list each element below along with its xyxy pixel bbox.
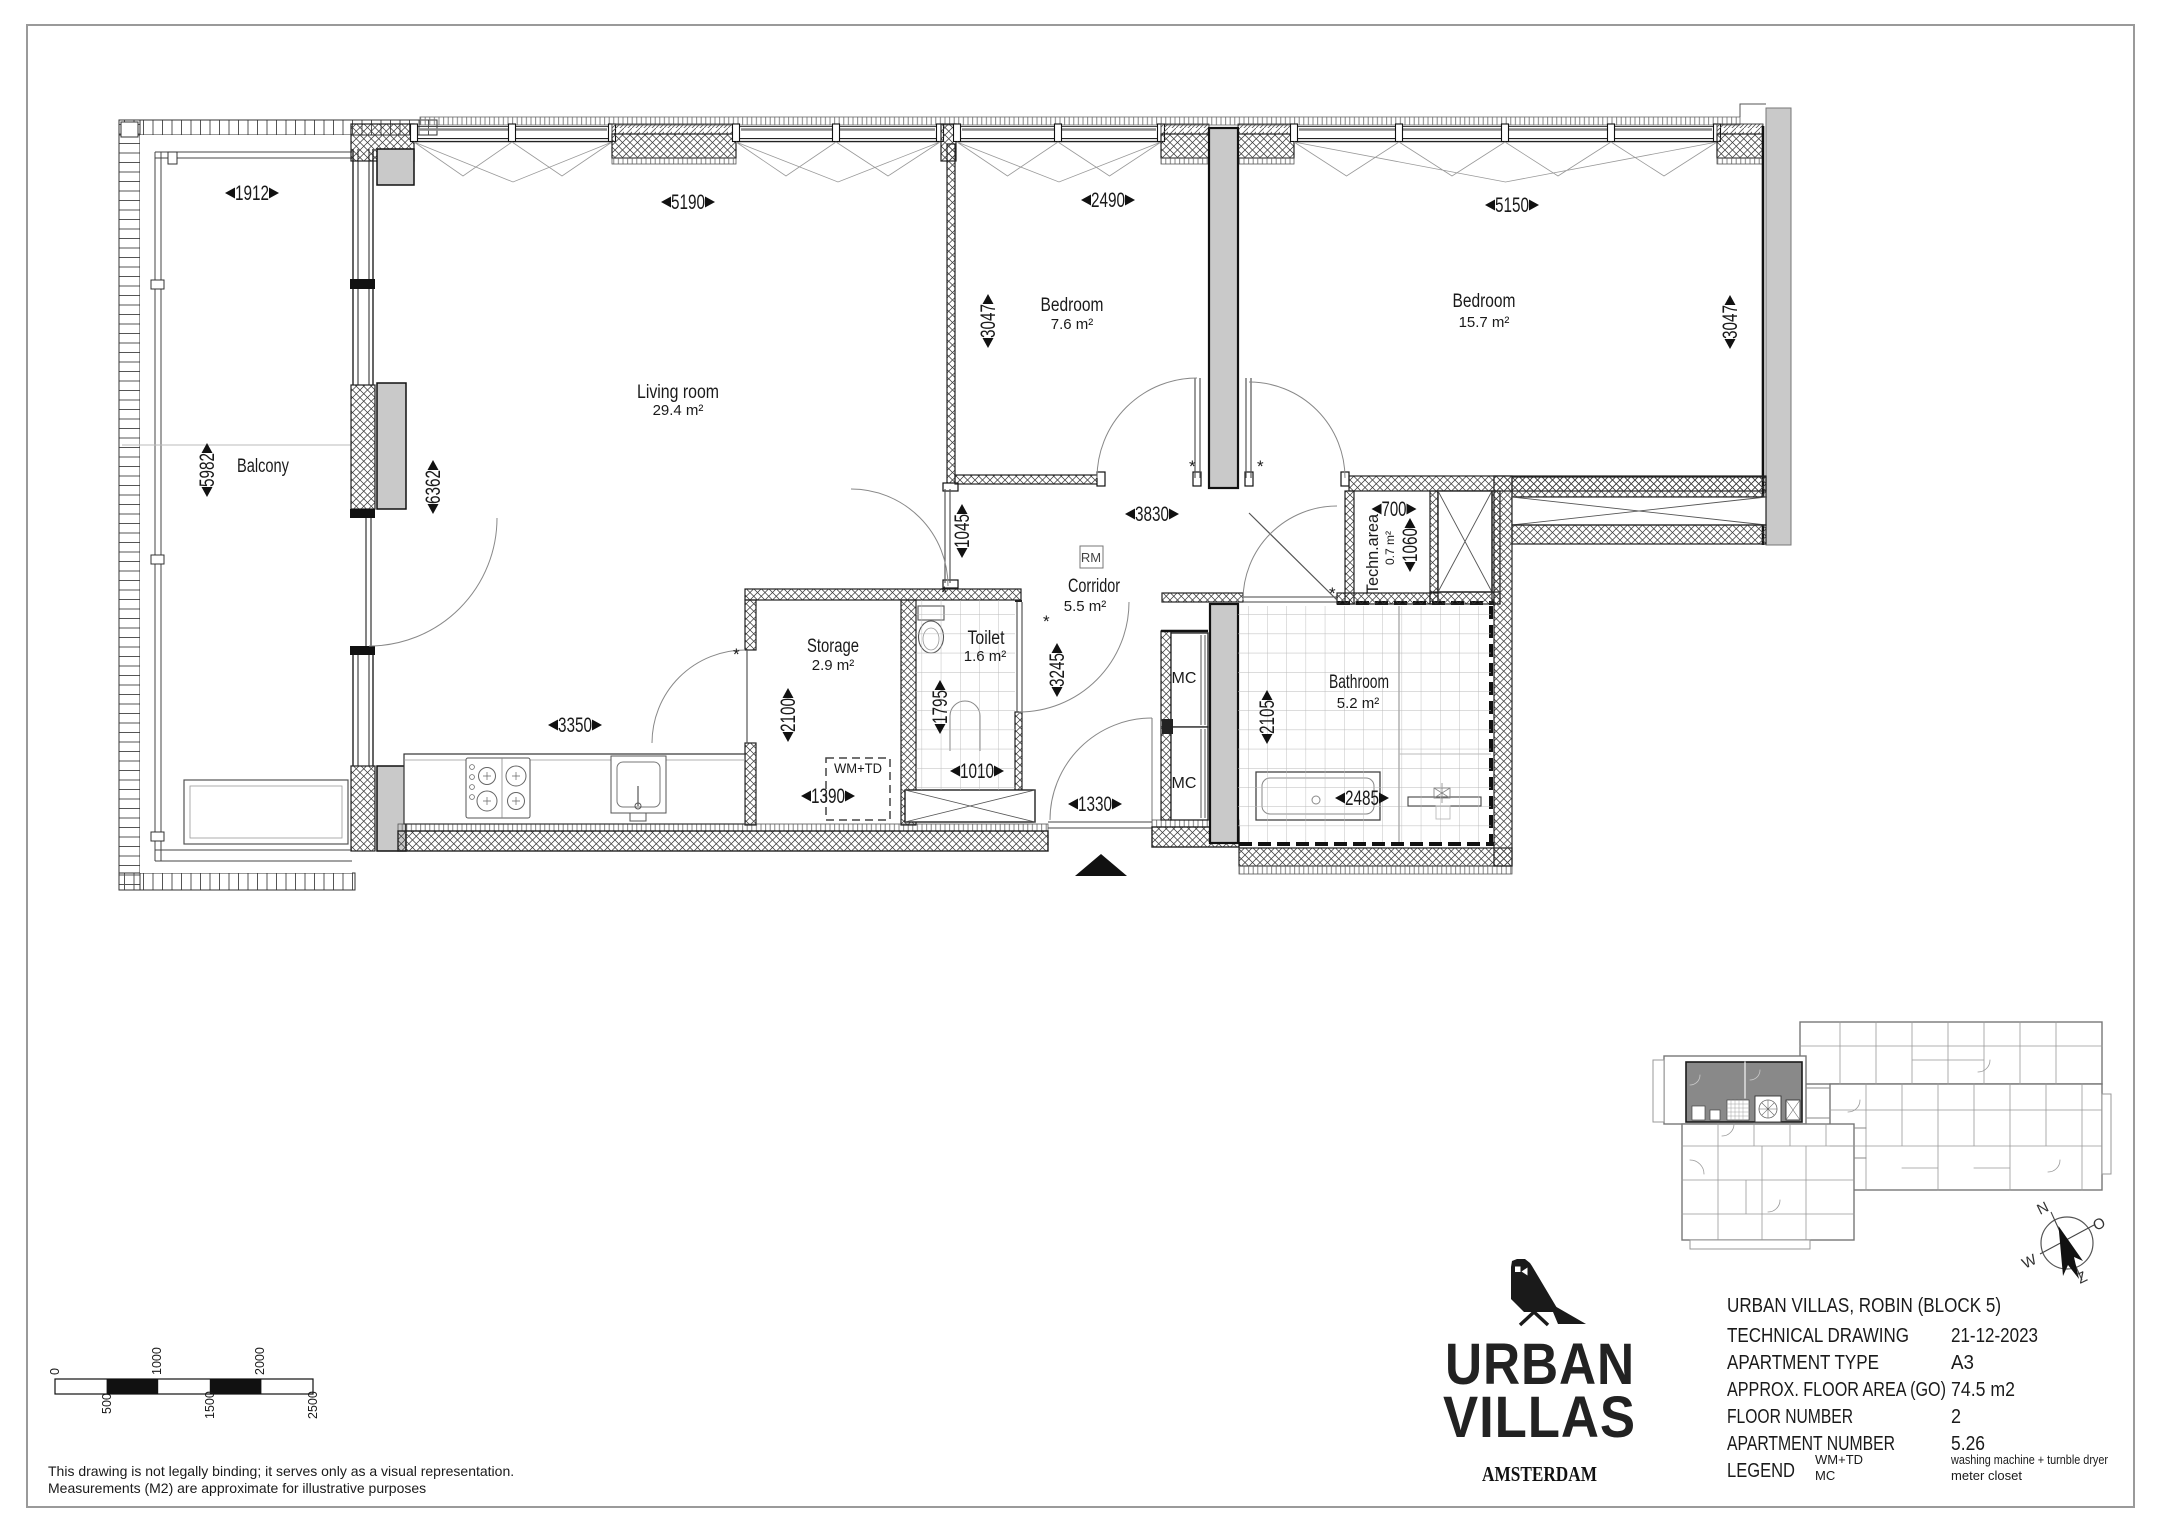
svg-text:3047: 3047 (1719, 305, 1742, 339)
svg-text:5190: 5190 (671, 191, 705, 214)
svg-text:500: 500 (100, 1393, 114, 1414)
svg-text:74.5 m2: 74.5 m2 (1951, 1379, 2015, 1401)
svg-text:MC: MC (1172, 670, 1197, 687)
svg-text:Bedroom: Bedroom (1453, 291, 1516, 312)
svg-text:1795: 1795 (929, 690, 952, 724)
svg-text:2490: 2490 (1091, 189, 1125, 212)
svg-text:1912: 1912 (235, 182, 269, 205)
svg-text:MC: MC (1172, 775, 1197, 792)
svg-text:7.6 m²: 7.6 m² (1051, 316, 1094, 333)
svg-text:3245: 3245 (1046, 653, 1069, 687)
svg-text:washing machine + turnble drye: washing machine + turnble dryer (1950, 1452, 2108, 1467)
svg-text:2500: 2500 (306, 1391, 320, 1419)
svg-text:1500: 1500 (203, 1391, 217, 1419)
svg-text:Techn.area: Techn.area (1363, 513, 1382, 594)
svg-text:3830: 3830 (1135, 503, 1169, 526)
svg-text:TECHNICAL DRAWING: TECHNICAL DRAWING (1727, 1325, 1909, 1347)
svg-text:Bathroom: Bathroom (1329, 672, 1389, 693)
svg-text:2105: 2105 (1256, 700, 1279, 734)
svg-text:1010: 1010 (960, 760, 994, 783)
svg-text:Living room: Living room (637, 382, 719, 403)
svg-text:3047: 3047 (977, 304, 1000, 338)
svg-text:1.6 m²: 1.6 m² (964, 648, 1007, 665)
svg-text:URBAN VILLAS, ROBIN (BLOCK 5): URBAN VILLAS, ROBIN (BLOCK 5) (1727, 1295, 2001, 1317)
svg-text:This drawing is not legally bi: This drawing is not legally binding; it … (48, 1463, 514, 1479)
svg-text:5150: 5150 (1495, 194, 1529, 217)
svg-text:MC: MC (1815, 1468, 1835, 1483)
svg-text:APARTMENT NUMBER: APARTMENT NUMBER (1727, 1433, 1895, 1455)
svg-text:APPROX. FLOOR AREA (GO): APPROX. FLOOR AREA (GO) (1727, 1379, 1946, 1401)
svg-text:0.7 m²: 0.7 m² (1383, 531, 1397, 565)
svg-text:Bedroom: Bedroom (1041, 295, 1104, 316)
svg-text:2100: 2100 (777, 698, 800, 732)
svg-text:meter closet: meter closet (1951, 1468, 2022, 1483)
svg-text:Corridor: Corridor (1068, 576, 1121, 597)
svg-text:5.2 m²: 5.2 m² (1337, 695, 1380, 712)
svg-text:700: 700 (1382, 498, 1407, 521)
svg-text:Storage: Storage (807, 636, 859, 657)
svg-text:RM: RM (1081, 550, 1101, 565)
svg-text:A3: A3 (1951, 1352, 1974, 1374)
svg-text:5.5 m²: 5.5 m² (1064, 598, 1107, 615)
svg-text:VILLAS: VILLAS (1443, 1385, 1636, 1450)
svg-text:*: * (1043, 612, 1050, 631)
svg-text:Measurements (M2) are approxim: Measurements (M2) are approximate for il… (48, 1480, 426, 1496)
svg-text:2000: 2000 (253, 1347, 267, 1375)
svg-text:15.7 m²: 15.7 m² (1459, 314, 1510, 331)
svg-text:LEGEND: LEGEND (1727, 1460, 1795, 1482)
svg-text:2.9 m²: 2.9 m² (812, 657, 855, 674)
svg-text:FLOOR NUMBER: FLOOR NUMBER (1727, 1406, 1853, 1428)
svg-text:1390: 1390 (811, 785, 845, 808)
svg-text:*: * (733, 645, 740, 664)
svg-text:Balcony: Balcony (237, 456, 289, 477)
svg-text:1000: 1000 (150, 1347, 164, 1375)
svg-text:1330: 1330 (1078, 793, 1112, 816)
svg-text:29.4 m²: 29.4 m² (653, 402, 704, 419)
svg-text:*: * (941, 583, 948, 602)
svg-text:WM+TD: WM+TD (1815, 1452, 1863, 1467)
svg-text:AMSTERDAM: AMSTERDAM (1482, 1462, 1597, 1486)
svg-text:*: * (1189, 457, 1196, 476)
svg-text:*: * (1329, 584, 1336, 603)
svg-text:2485: 2485 (1345, 787, 1379, 810)
svg-text:3350: 3350 (558, 714, 592, 737)
svg-text:APARTMENT TYPE: APARTMENT TYPE (1727, 1352, 1879, 1374)
svg-text:WM+TD: WM+TD (834, 760, 882, 776)
svg-text:1060: 1060 (1399, 528, 1422, 562)
svg-text:6362: 6362 (422, 470, 445, 504)
svg-text:*: * (1257, 457, 1264, 476)
svg-text:5982: 5982 (196, 453, 219, 487)
svg-text:21-12-2023: 21-12-2023 (1951, 1325, 2038, 1347)
svg-text:0: 0 (48, 1368, 62, 1375)
svg-text:2: 2 (1951, 1406, 1961, 1428)
svg-text:1045: 1045 (951, 514, 974, 548)
svg-text:Toilet: Toilet (968, 628, 1006, 649)
